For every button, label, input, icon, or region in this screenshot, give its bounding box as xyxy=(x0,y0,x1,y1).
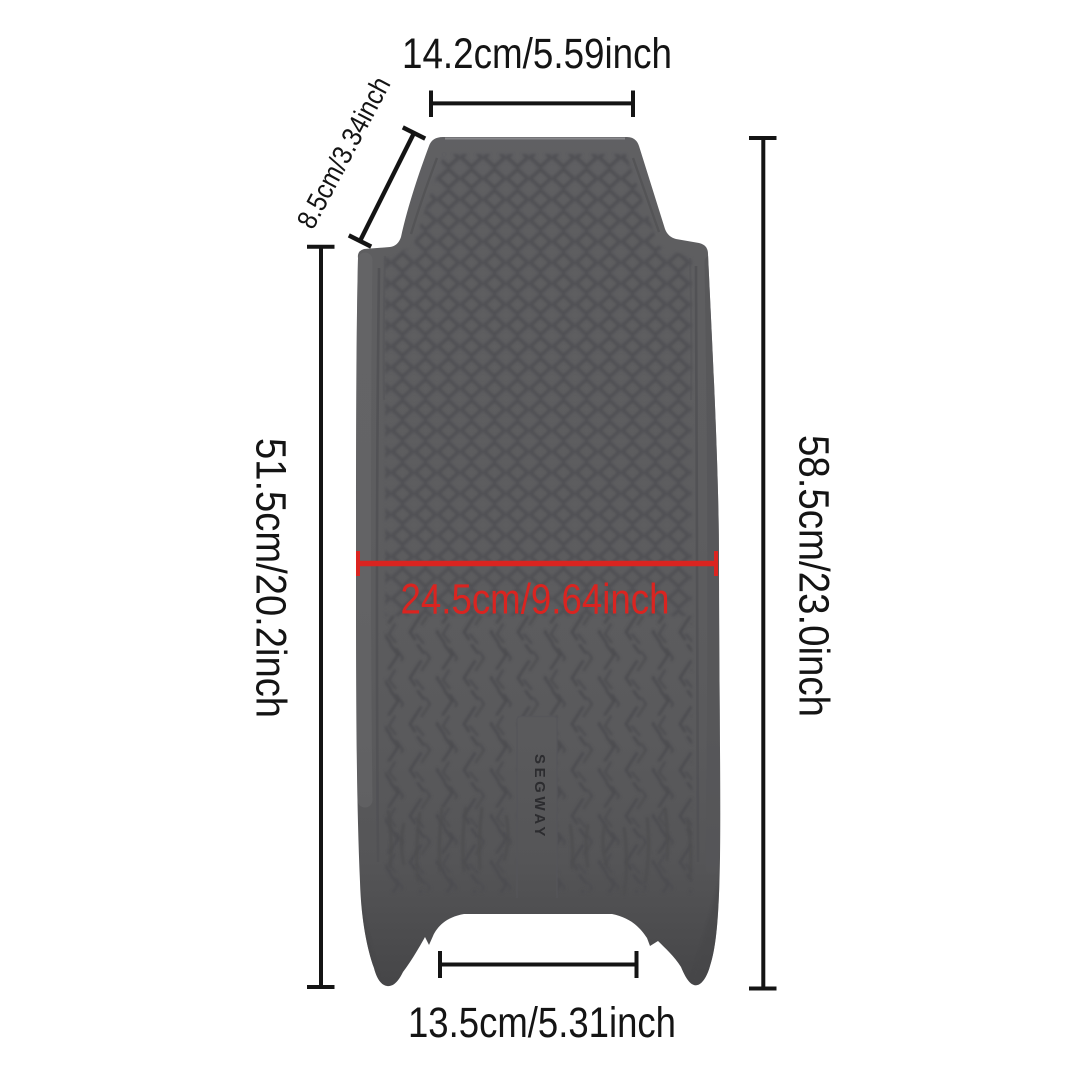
svg-text:58.5cm/23.0inch: 58.5cm/23.0inch xyxy=(790,435,838,717)
svg-text:51.5cm/20.2inch: 51.5cm/20.2inch xyxy=(247,438,295,718)
svg-text:14.2cm/5.59inch: 14.2cm/5.59inch xyxy=(402,31,672,78)
svg-text:24.5cm/9.64inch: 24.5cm/9.64inch xyxy=(401,577,670,624)
svg-text:13.5cm/5.31inch: 13.5cm/5.31inch xyxy=(408,1000,676,1047)
svg-text:SEGWAY: SEGWAY xyxy=(531,754,547,840)
